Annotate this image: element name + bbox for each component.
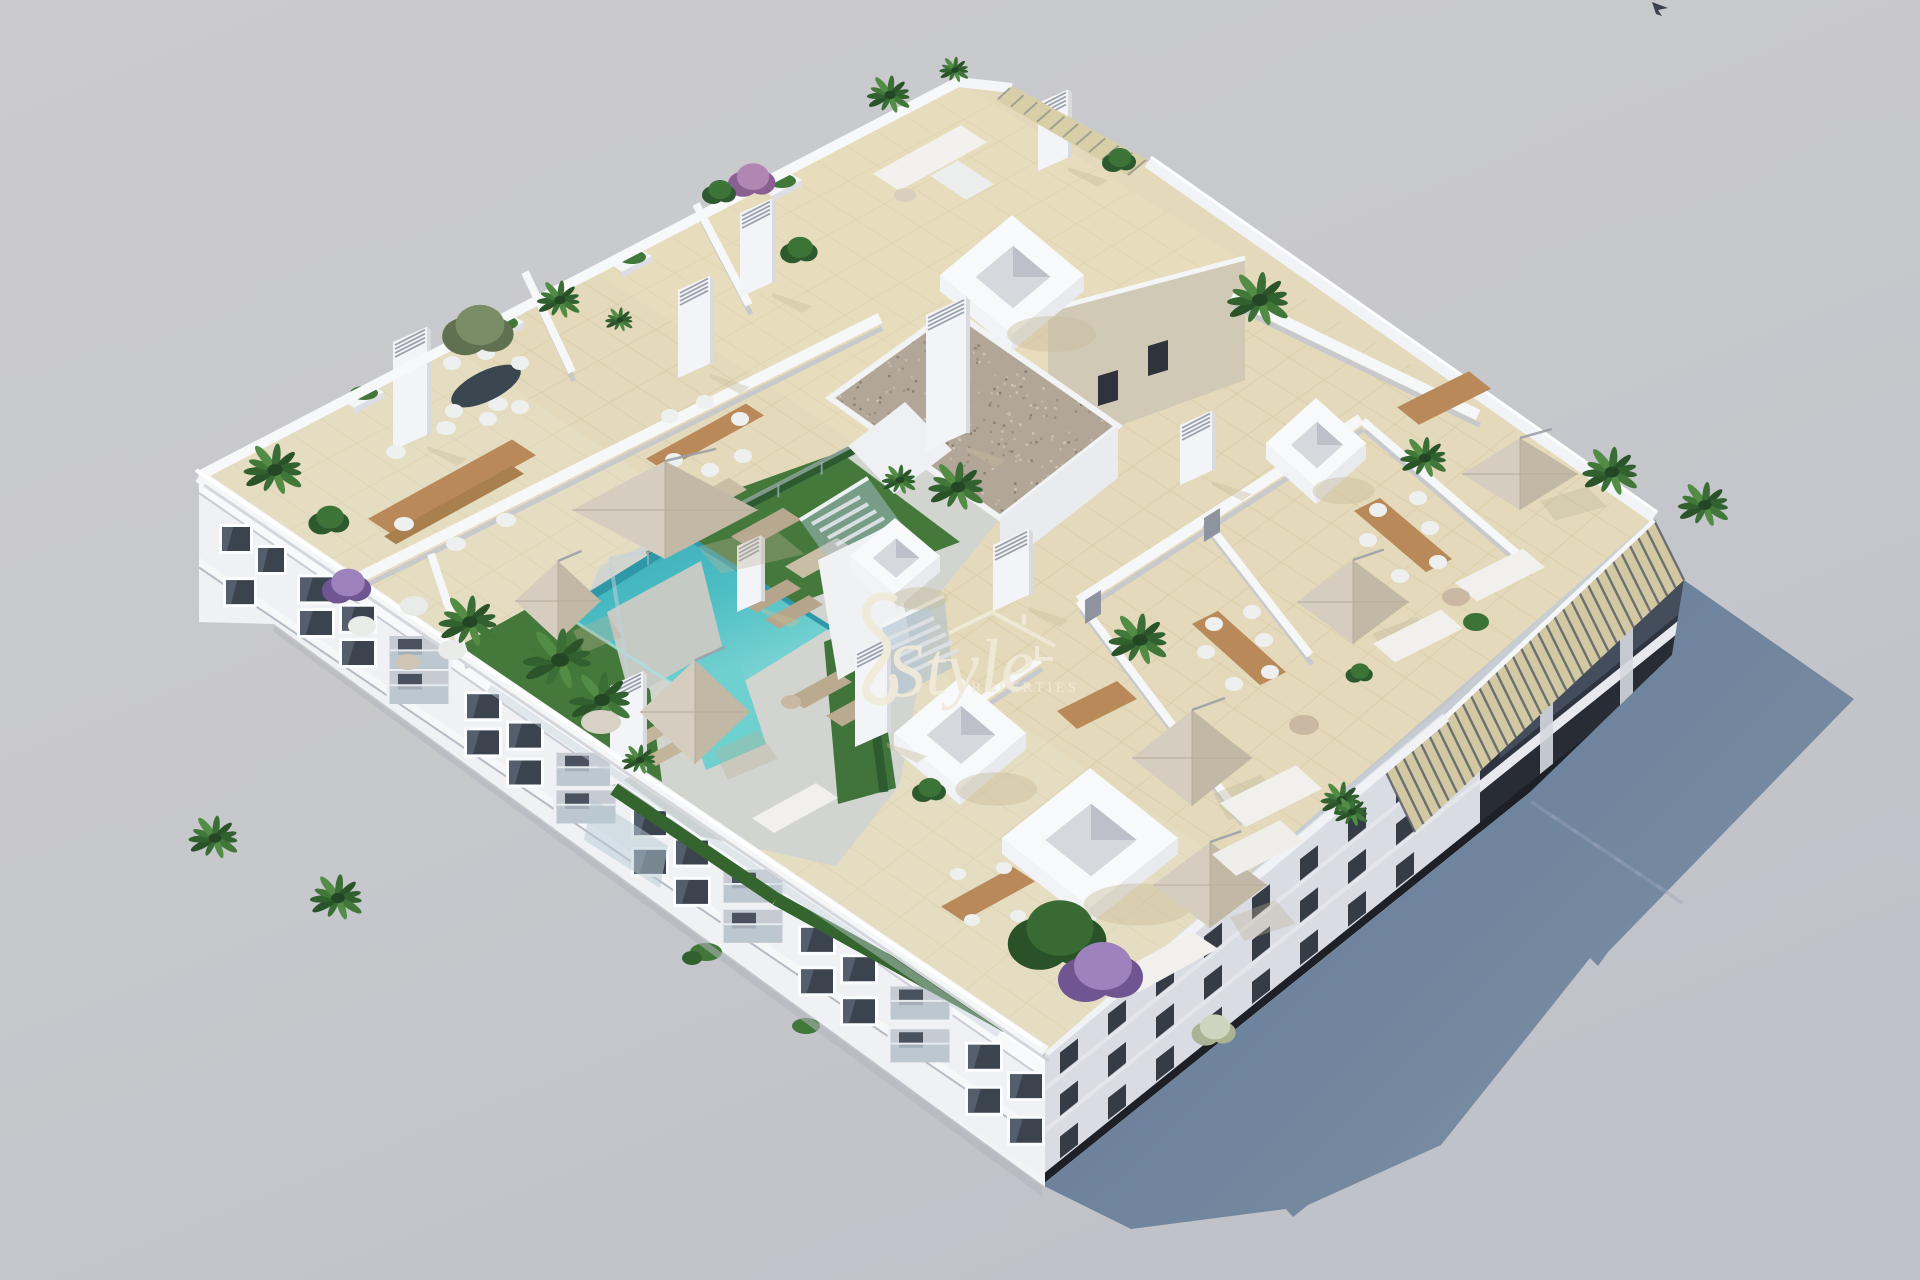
svg-text:PROPERTIES: PROPERTIES bbox=[960, 680, 1079, 696]
svg-text:Style: Style bbox=[884, 622, 1036, 714]
